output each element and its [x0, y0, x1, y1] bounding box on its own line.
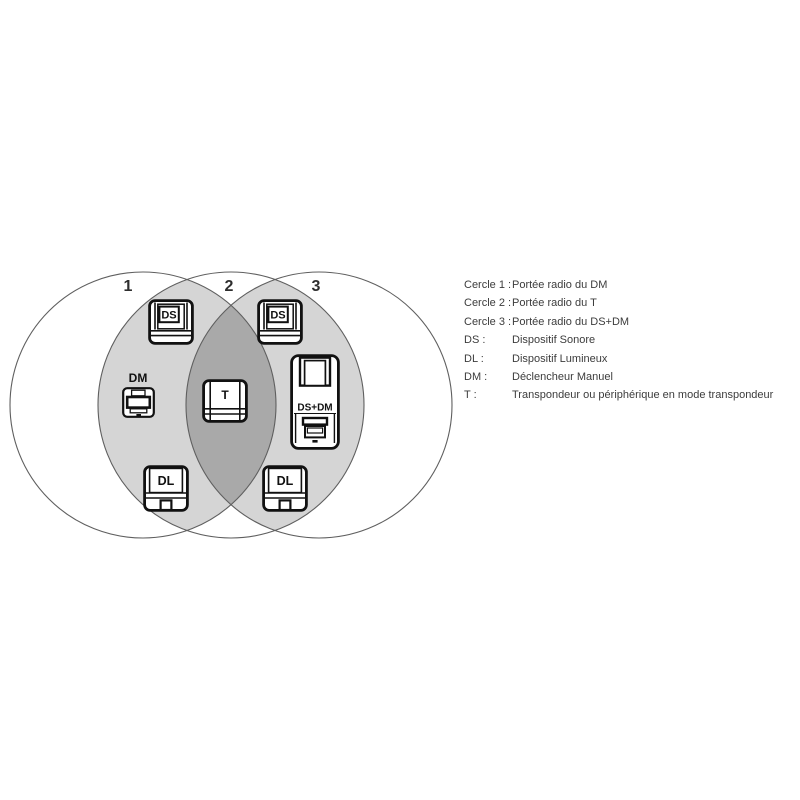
ds-left-label: DS [161, 310, 176, 322]
legend-row-dl: DL : Dispositif Lumineux [464, 350, 794, 368]
legend-definition: Portée radio du DS+DM [512, 313, 629, 331]
circle-2-label: 2 [225, 278, 234, 295]
legend-term: DL : [464, 350, 512, 368]
legend-definition: Portée radio du T [512, 294, 597, 312]
legend-term: DM : [464, 368, 512, 386]
legend-definition: Dispositif Sonore [512, 331, 595, 349]
legend: Cercle 1 : Portée radio du DM Cercle 2 :… [464, 276, 794, 405]
legend-term: Cercle 3 : [464, 313, 512, 331]
legend-row-cercle-1: Cercle 1 : Portée radio du DM [464, 276, 794, 294]
legend-term: T : [464, 386, 512, 404]
ds-device-icon-left: DS [150, 301, 193, 344]
ds-device-icon-right: DS [259, 301, 302, 344]
dl-left-label: DL [158, 474, 175, 488]
t-device-icon: T [204, 381, 247, 422]
legend-term: Cercle 2 : [464, 294, 512, 312]
legend-term: DS : [464, 331, 512, 349]
venn-diagram: 1 2 3 DS DS DM [0, 260, 470, 550]
legend-definition: Transpondeur ou périphérique en mode tra… [512, 386, 773, 404]
dl-right-label: DL [277, 474, 294, 488]
legend-definition: Déclencheur Manuel [512, 368, 613, 386]
legend-row-t: T : Transpondeur ou périphérique en mode… [464, 386, 794, 404]
legend-row-dm: DM : Déclencheur Manuel [464, 368, 794, 386]
legend-term: Cercle 1 : [464, 276, 512, 294]
ds-right-label: DS [270, 310, 285, 322]
dm-device-icon [123, 388, 154, 417]
legend-row-cercle-3: Cercle 3 : Portée radio du DS+DM [464, 313, 794, 331]
dl-device-icon-left: DL [145, 467, 188, 511]
dm-label: DM [129, 371, 148, 385]
page-background: 1 2 3 DS DS DM [0, 0, 800, 800]
ds-dm-label: DS+DM [297, 403, 332, 414]
circle-1-label: 1 [124, 278, 133, 295]
legend-definition: Portée radio du DM [512, 276, 607, 294]
t-label: T [221, 388, 229, 402]
circle-3-label: 3 [312, 278, 321, 295]
ds-dm-device-icon: DS+DM [292, 356, 339, 449]
legend-row-cercle-2: Cercle 2 : Portée radio du T [464, 294, 794, 312]
legend-definition: Dispositif Lumineux [512, 350, 607, 368]
dl-device-icon-right: DL [264, 467, 307, 511]
legend-row-ds: DS : Dispositif Sonore [464, 331, 794, 349]
